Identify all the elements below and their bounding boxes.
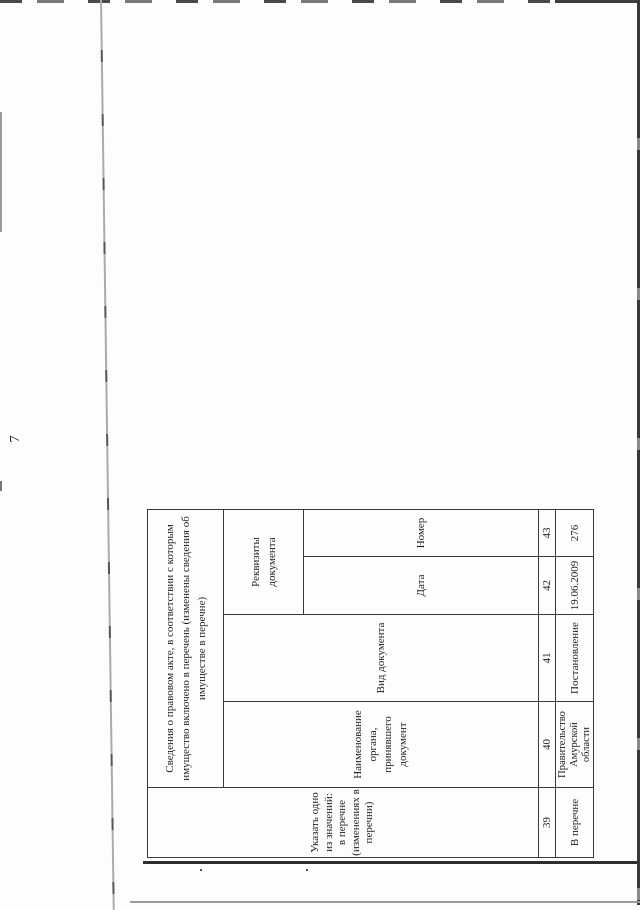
main-header-line: имуществе в перечне) (194, 510, 210, 787)
col42-header-cell: Дата (304, 557, 539, 615)
value-authority-line: Амурской (569, 702, 581, 787)
col39-header-line: (изменениях в (350, 788, 364, 857)
col40-header-line: Наименование (351, 702, 366, 787)
requisites-header-line: документа (264, 510, 280, 614)
col39-header-line: в перечне (336, 788, 350, 857)
col40-header-line: документ (396, 702, 411, 787)
scanned-document-page: 7 Указать одно из значений: в перечне (и… (0, 0, 640, 905)
value-cell-document-type: Постановление (556, 615, 594, 702)
col39-header-cell: Указать одно из значений: в перечне (изм… (148, 788, 539, 858)
col40-header-line: органа, (366, 702, 381, 787)
requisites-header-line: Реквизиты (248, 510, 264, 614)
ink-speck (306, 869, 308, 871)
col43-header-cell: Номер (304, 509, 539, 556)
page-number: 7 (8, 428, 30, 450)
value-cell-document-date: 19.06.2009 (556, 557, 594, 615)
col39-header-line: из значений: (323, 788, 337, 857)
scan-edge-top (0, 0, 640, 3)
ink-speck (200, 869, 202, 871)
registry-table: Указать одно из значений: в перечне (изм… (147, 509, 594, 858)
value-cell-authority: Правительство Амурской области (556, 702, 594, 788)
column-number-cell-43: 43 (539, 509, 556, 556)
col40-header-line: принявшего (381, 702, 396, 787)
scan-line-bottom-gray (130, 901, 640, 903)
requisites-header-cell: Реквизиты документа (224, 509, 304, 614)
col39-header-line: Указать одно (309, 788, 323, 857)
column-number-cell-40: 40 (539, 702, 556, 788)
col39-header-line: перечни) (363, 788, 377, 857)
scan-edge-top-right (555, 0, 640, 3)
main-header-cell: Сведения о правовом акте, в соответствии… (148, 509, 224, 787)
column-number-cell-41: 41 (539, 615, 556, 702)
main-header-line: имущество включено в перечень (изменены … (178, 510, 194, 787)
page-fold-line (100, 0, 115, 910)
col41-header-cell: Вид документа (224, 615, 539, 702)
column-number-cell-42: 42 (539, 557, 556, 615)
column-number-cell-39: 39 (539, 788, 556, 858)
scan-line-bottom-dark (143, 861, 637, 864)
value-authority-line: Правительство (557, 702, 569, 787)
value-cell-document-number: 276 (556, 509, 594, 556)
scan-dash-left (0, 481, 2, 491)
value-authority-line: области (581, 702, 593, 787)
registry-table-wrap: Указать одно из значений: в перечне (изм… (147, 510, 593, 858)
main-header-line: Сведения о правовом акте, в соответствии… (162, 510, 178, 787)
col40-header-cell: Наименование органа, принявшего документ (224, 702, 539, 788)
value-cell-listing-status: В перечне (556, 788, 594, 858)
scan-mark-left (0, 112, 2, 232)
